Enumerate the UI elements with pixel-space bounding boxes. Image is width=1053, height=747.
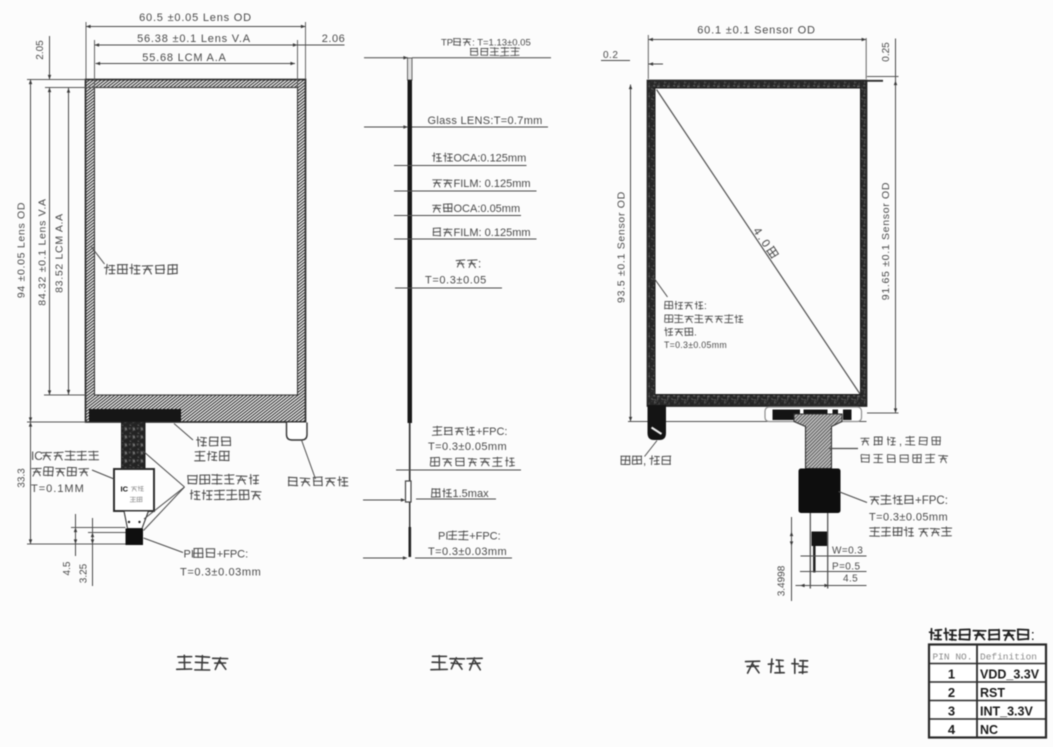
- svg-text:T=0.3±0.05mm: T=0.3±0.05mm: [664, 340, 727, 350]
- svg-text:,: ,: [899, 436, 902, 448]
- svg-text:2: 2: [948, 685, 955, 700]
- svg-text:NC: NC: [980, 723, 998, 737]
- svg-text:94 ±0.05 Lens OD: 94 ±0.05 Lens OD: [16, 202, 28, 298]
- svg-text:60.1 ±0.1 Sensor OD: 60.1 ±0.1 Sensor OD: [697, 25, 815, 37]
- svg-text:P=0.5: P=0.5: [832, 562, 860, 573]
- svg-text::: :: [478, 259, 481, 271]
- svg-text:0.2: 0.2: [603, 50, 618, 61]
- svg-text:Glass LENS:T=0.7mm: Glass LENS:T=0.7mm: [428, 115, 543, 127]
- svg-text:T=0.3±0.05mm: T=0.3±0.05mm: [869, 512, 948, 524]
- svg-text:T=0.1MM: T=0.1MM: [31, 483, 85, 495]
- svg-text:0.25: 0.25: [881, 42, 892, 62]
- svg-text:91.65 ±0.1 Sensor OD: 91.65 ±0.1 Sensor OD: [880, 182, 892, 300]
- svg-text:+FPC:: +FPC:: [915, 495, 948, 507]
- svg-text:INT_3.3V: INT_3.3V: [980, 705, 1033, 719]
- svg-text:+FPC:: +FPC:: [476, 426, 507, 438]
- svg-text:2.05: 2.05: [35, 40, 46, 60]
- svg-text:T=0.3±0.03mm: T=0.3±0.03mm: [180, 567, 261, 579]
- svg-text:IC: IC: [121, 485, 129, 494]
- svg-text:83.52 LCM A.A: 83.52 LCM A.A: [54, 213, 66, 293]
- svg-text:60.5 ±0.05 Lens OD: 60.5 ±0.05 Lens OD: [139, 12, 252, 24]
- svg-text:4.5: 4.5: [843, 574, 858, 585]
- svg-text:1.5max: 1.5max: [453, 488, 490, 500]
- svg-text:,: ,: [643, 456, 646, 468]
- svg-text:PI: PI: [184, 549, 194, 561]
- svg-text:T=0.3±0.05: T=0.3±0.05: [425, 275, 487, 287]
- svg-text:56.38 ±0.1 Lens V.A: 56.38 ±0.1 Lens V.A: [137, 33, 251, 45]
- svg-text:IC: IC: [31, 449, 43, 463]
- svg-text:84.32 ±0.1 Lens V.A: 84.32 ±0.1 Lens V.A: [37, 198, 49, 305]
- svg-text:W=0.3: W=0.3: [832, 546, 863, 557]
- svg-text:2.06: 2.06: [322, 33, 345, 45]
- svg-text:TP: TP: [441, 38, 453, 49]
- svg-text:OCA:0.05mm: OCA:0.05mm: [454, 203, 521, 215]
- svg-text:3.4998: 3.4998: [777, 565, 788, 596]
- svg-text:33.3: 33.3: [17, 468, 28, 488]
- svg-text::: :: [704, 301, 707, 312]
- svg-text:93.5 ±0.1 Sensor OD: 93.5 ±0.1 Sensor OD: [616, 191, 628, 303]
- svg-text:RST: RST: [980, 686, 1005, 700]
- svg-text:FILM: 0.125mm: FILM: 0.125mm: [454, 178, 531, 190]
- svg-text:1: 1: [948, 667, 955, 682]
- svg-text:: T=1.13±0.05: : T=1.13±0.05: [472, 38, 531, 49]
- svg-text:55.68 LCM A.A: 55.68 LCM A.A: [142, 52, 226, 64]
- svg-text:OCA:0.125mm: OCA:0.125mm: [454, 153, 527, 165]
- svg-text:3: 3: [948, 704, 955, 719]
- svg-text:PIN NO.: PIN NO.: [933, 652, 973, 663]
- svg-text:4.5: 4.5: [62, 561, 73, 575]
- svg-text:.: .: [694, 328, 697, 339]
- svg-text:+FPC:: +FPC:: [469, 531, 500, 543]
- svg-text::: :: [1031, 628, 1035, 644]
- svg-text:3.25: 3.25: [79, 563, 90, 583]
- svg-text:T=0.3±0.03mm: T=0.3±0.03mm: [428, 546, 507, 558]
- svg-text:4.0: 4.0: [750, 226, 773, 252]
- svg-text:VDD_3.3V: VDD_3.3V: [980, 668, 1040, 682]
- svg-text:Definition: Definition: [980, 652, 1037, 663]
- svg-text:PI: PI: [438, 531, 448, 543]
- svg-text:+FPC:: +FPC:: [217, 549, 248, 561]
- svg-text:T=0.3±0.05mm: T=0.3±0.05mm: [428, 441, 507, 453]
- svg-text:4: 4: [948, 722, 956, 737]
- svg-text:FILM: 0.125mm: FILM: 0.125mm: [454, 227, 531, 239]
